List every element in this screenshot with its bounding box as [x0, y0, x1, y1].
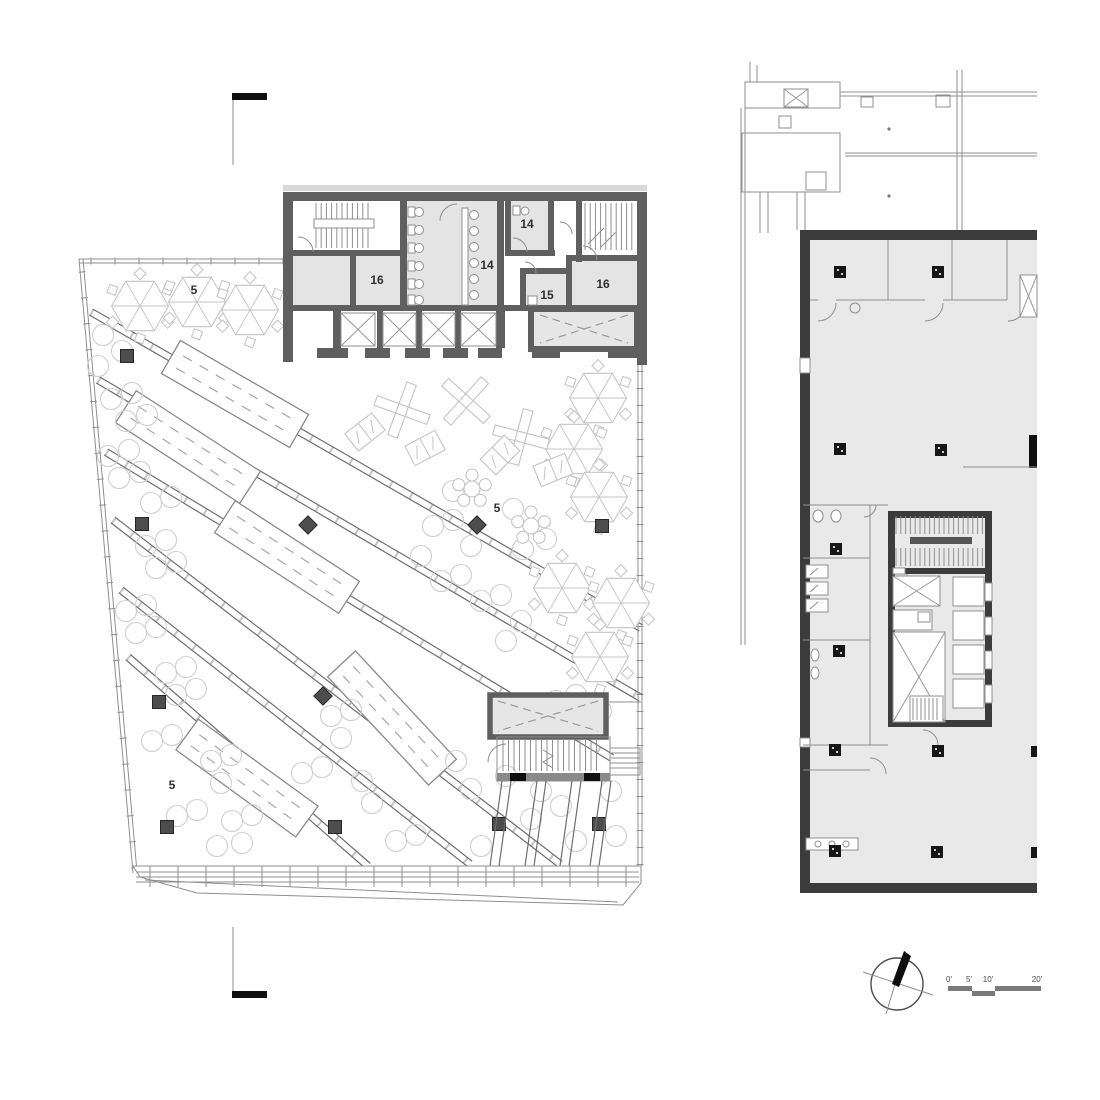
stool-chair: [162, 725, 183, 746]
column-speckle: [832, 848, 834, 850]
stool-chair: [312, 757, 333, 778]
line: [122, 764, 129, 765]
sill-block: [510, 773, 526, 781]
column-speckle: [841, 450, 843, 452]
workstation-cluster: [528, 550, 595, 626]
column-diamond: [314, 687, 332, 705]
stool-chair: [566, 831, 587, 852]
line: [99, 505, 106, 506]
toilet-bowl: [415, 262, 424, 271]
sink: [470, 259, 479, 268]
column-speckle: [840, 652, 842, 654]
column-diamond: [299, 516, 317, 534]
toilet-bowl: [415, 208, 424, 217]
column-speckle: [938, 853, 940, 855]
core-wall: [405, 348, 430, 358]
workstation-cluster: [587, 565, 654, 641]
column: [161, 821, 174, 834]
architectural-sheet: 5 5 5 14 14 15 16 16 0' 5' 10' 20': [0, 0, 1100, 1100]
line: [106, 582, 113, 583]
plate-wall-left: [800, 230, 810, 893]
parapet: [283, 185, 647, 191]
roof-structure: [861, 97, 873, 107]
column-speckle: [837, 550, 839, 552]
ramp-platform: [176, 719, 318, 837]
core-wall: [505, 201, 511, 254]
line: [115, 686, 122, 687]
stool-chair: [109, 468, 130, 489]
core-wall: [637, 192, 647, 365]
toilet: [408, 207, 415, 217]
line: [124, 790, 131, 791]
core-wall: [377, 311, 383, 348]
stair-landing: [314, 219, 374, 228]
scale-segment: [972, 991, 995, 996]
column-speckle: [836, 648, 838, 650]
left-plan-core: [283, 185, 647, 365]
elevator-cab: [953, 679, 984, 708]
toilet-bowl: [415, 226, 424, 235]
column: [935, 444, 947, 456]
core-wall: [505, 250, 555, 256]
toilet: [408, 243, 415, 253]
core-wall: [566, 255, 637, 261]
room-label-restrooms-main: 14: [480, 258, 494, 272]
core-wall: [566, 255, 572, 310]
column-speckle: [836, 751, 838, 753]
column-speckle: [938, 447, 940, 449]
line: [85, 349, 92, 350]
column-speckle: [836, 852, 838, 854]
room-16-west: [293, 256, 400, 305]
core-wall: [416, 311, 422, 348]
scale-segment: [995, 986, 1041, 991]
column: [153, 696, 166, 709]
platform-outline: [328, 651, 457, 785]
sink: [470, 211, 479, 220]
stair-direction: [543, 750, 553, 768]
column-speckle: [934, 849, 936, 851]
core-stair-lower: [910, 696, 943, 722]
column: [833, 645, 845, 657]
sink: [470, 227, 479, 236]
toilet-bowl: [521, 207, 529, 215]
workstation-cluster: [106, 268, 173, 344]
core-wall: [888, 511, 992, 518]
stool-chair: [511, 611, 532, 632]
sink: [470, 243, 479, 252]
column-speckle: [837, 446, 839, 448]
round-table-with-chairs: [453, 469, 492, 506]
stool-chair: [116, 601, 137, 622]
core-wall: [520, 268, 526, 310]
edge-wall-segment: [1029, 435, 1037, 468]
core-wall: [293, 250, 404, 256]
core-wall: [455, 311, 461, 348]
stool-chair: [242, 805, 263, 826]
stool-chair: [186, 679, 207, 700]
core-wall: [317, 348, 348, 358]
stool-chair: [146, 558, 167, 579]
core-wall: [532, 350, 560, 358]
column-speckle: [935, 748, 937, 750]
duct: [918, 612, 930, 622]
edge-steps: [610, 748, 640, 775]
fixture: [528, 296, 537, 305]
scale-bar-labels: 0' 5' 10' 20': [946, 975, 1043, 984]
scale-bar: [948, 986, 1041, 996]
north-needle: [892, 951, 911, 987]
stool-chair: [411, 546, 432, 567]
column-speckle: [942, 451, 944, 453]
wall-opening: [800, 738, 810, 747]
column: [932, 745, 944, 757]
room-label-16-east: 16: [596, 277, 610, 291]
core-wall: [497, 201, 504, 311]
stool-chair: [222, 811, 243, 832]
stool-chair: [321, 706, 342, 727]
duo-table: [345, 413, 385, 451]
core-wall: [293, 305, 520, 311]
room-label-restroom-small: 14: [520, 217, 534, 231]
wall-opening: [800, 358, 810, 373]
elevator-door-opening: [985, 583, 992, 601]
stool-chair: [292, 763, 313, 784]
stool-chair: [142, 731, 163, 752]
column: [493, 818, 506, 831]
column-speckle: [939, 273, 941, 275]
column: [830, 543, 842, 555]
bottom-terrace-band: [133, 866, 641, 905]
elevator-cab: [953, 645, 984, 674]
roof-structure: [779, 116, 791, 128]
elevator-door-opening: [985, 617, 992, 635]
column-speckle: [837, 269, 839, 271]
duo-table: [480, 435, 520, 475]
sink: [470, 291, 479, 300]
stool-chair: [331, 728, 352, 749]
scale-segment: [948, 986, 972, 991]
plate-wall-top: [800, 230, 1037, 240]
scale-tick-20: 20': [1032, 975, 1043, 984]
column-speckle: [841, 273, 843, 275]
line: [600, 232, 616, 248]
stool-chair: [423, 516, 444, 537]
line: [127, 816, 134, 817]
line: [79, 272, 86, 273]
column: [931, 846, 943, 858]
elevator-door-opening: [985, 651, 992, 669]
column: [329, 821, 342, 834]
column: [834, 266, 846, 278]
room-label-16-west: 16: [370, 273, 384, 287]
core-wall: [400, 201, 407, 311]
line: [83, 323, 90, 324]
column-speckle: [939, 752, 941, 754]
stool-chair: [471, 836, 492, 857]
right-plan-plate: [800, 230, 1037, 893]
core-wall: [333, 311, 341, 348]
stool-chair: [156, 530, 177, 551]
stool-chair: [491, 585, 512, 606]
core-wall: [443, 348, 468, 358]
stool-chair: [362, 793, 383, 814]
stair-west: [314, 203, 374, 248]
north-arrow-icon: [863, 951, 933, 1014]
sink: [831, 510, 841, 522]
elevator-cab: [953, 611, 984, 640]
column: [829, 744, 841, 756]
column: [834, 443, 846, 455]
core-wall: [520, 268, 567, 274]
stool-chair: [166, 685, 187, 706]
room-label-15: 15: [540, 288, 554, 302]
line: [101, 531, 108, 532]
line: [113, 660, 120, 661]
stool-chair: [156, 663, 177, 684]
stool-chair: [119, 440, 140, 461]
door-swing: [560, 222, 572, 234]
core-wall: [365, 348, 390, 358]
column: [136, 518, 149, 531]
duo-table: [405, 430, 445, 465]
line: [90, 401, 97, 402]
edge-column: [1031, 746, 1037, 757]
toilet: [408, 261, 415, 271]
stool-chair: [161, 487, 182, 508]
column: [121, 350, 134, 363]
scale-tick-0: 0': [946, 975, 952, 984]
core-wall: [496, 311, 505, 348]
stair-rail: [910, 537, 972, 544]
line: [108, 608, 115, 609]
stool-chair: [187, 800, 208, 821]
round-table-with-chairs: [512, 506, 551, 543]
stair-east: [585, 203, 632, 250]
core-wall: [478, 348, 502, 358]
scale-tick-10: 10': [983, 975, 994, 984]
core-wall: [520, 305, 637, 311]
toilet-bowl: [415, 244, 424, 253]
sink: [813, 510, 823, 522]
elevator-door-opening: [985, 685, 992, 703]
lower-service-core: [488, 695, 641, 866]
urinal: [811, 667, 819, 679]
toilet-bowl: [415, 280, 424, 289]
stool-chair: [93, 325, 114, 346]
stool-chair: [386, 831, 407, 852]
core-wall: [350, 256, 356, 310]
room-label-open-office-center: 5: [494, 501, 501, 515]
sink-counter: [462, 208, 468, 305]
wc-stall: [806, 565, 828, 578]
stool-chair: [126, 623, 147, 644]
toilet: [408, 279, 415, 289]
left-floor-plan: [79, 185, 655, 905]
door-opening: [893, 568, 905, 574]
toilet: [513, 206, 520, 215]
platform-outline: [176, 719, 318, 837]
core-wall: [576, 201, 582, 262]
line: [111, 634, 118, 635]
stool-chair: [207, 836, 228, 857]
sill-block: [584, 773, 600, 781]
column-speckle: [935, 269, 937, 271]
scale-tick-5: 5': [966, 975, 972, 984]
line: [120, 738, 127, 739]
sink: [470, 275, 479, 284]
column: [593, 818, 606, 831]
room-label-open-office-upper: 5: [191, 283, 198, 297]
roof-structure: [806, 172, 826, 190]
roof-structure: [936, 95, 950, 107]
wc-stall: [806, 599, 828, 612]
stool-chair: [461, 536, 482, 557]
marker-dot: [887, 127, 890, 130]
stool-chair: [232, 833, 253, 854]
stool-chair: [531, 781, 552, 802]
door-swing: [298, 237, 313, 252]
marker-dot: [887, 194, 890, 197]
stool-chair: [461, 779, 482, 800]
right-floor-plan: [741, 62, 1037, 893]
toilet: [408, 295, 415, 305]
column-speckle: [832, 747, 834, 749]
stool-chair: [496, 631, 517, 652]
line: [81, 298, 88, 299]
crop-mark-top: [232, 93, 267, 100]
column-speckle: [833, 546, 835, 548]
column: [932, 266, 944, 278]
floor-plan-drawing: 5 5 5 14 14 15 16 16 0' 5' 10' 20': [0, 0, 1100, 1100]
column: [596, 520, 609, 533]
stool-chair: [406, 825, 427, 846]
ramp-platform: [328, 651, 457, 785]
urinal: [811, 649, 819, 661]
core-wall: [283, 192, 293, 362]
line: [117, 712, 124, 713]
toilet-bowl: [415, 296, 424, 305]
edge-column: [1031, 847, 1037, 858]
stool-chair: [176, 657, 197, 678]
plate-wall-bottom: [800, 883, 1037, 893]
stool-chair: [451, 565, 472, 586]
wc-stall: [806, 582, 828, 595]
core-wall: [608, 350, 638, 358]
column: [829, 845, 841, 857]
stool-chair: [88, 356, 109, 377]
line: [104, 557, 111, 558]
line: [129, 841, 136, 842]
stool-chair: [141, 493, 162, 514]
toilet: [408, 225, 415, 235]
core-wall: [283, 192, 647, 201]
elevator-cab: [953, 577, 984, 606]
room-label-open-office-lower: 5: [169, 778, 176, 792]
stool-chair: [606, 826, 627, 847]
line: [97, 479, 104, 480]
line: [92, 427, 99, 428]
crop-mark-bottom: [232, 991, 267, 998]
core-wall: [548, 201, 554, 254]
